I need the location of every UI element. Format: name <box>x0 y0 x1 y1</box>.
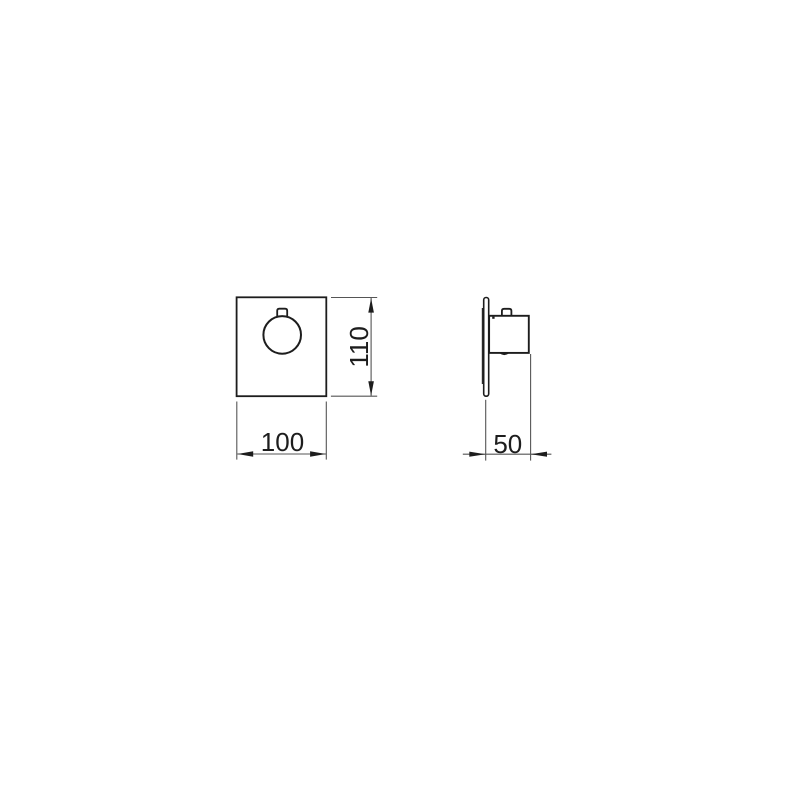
svg-text:110: 110 <box>344 326 374 367</box>
svg-text:100: 100 <box>261 427 304 457</box>
svg-text:50: 50 <box>493 429 522 459</box>
